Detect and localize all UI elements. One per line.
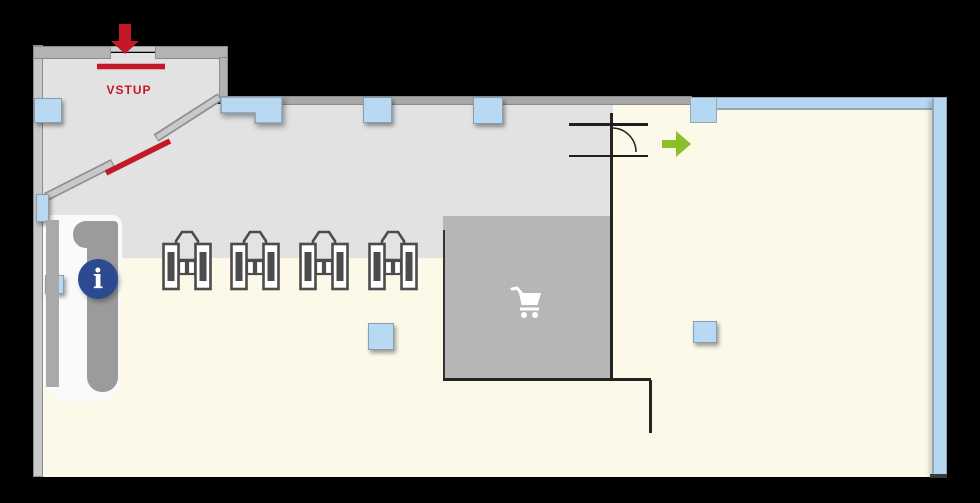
window-pillar: [34, 98, 62, 123]
shopping-cart-icon: [512, 288, 541, 318]
window-pillar-L: [221, 97, 282, 123]
entrance-gate-mark: [106, 141, 170, 173]
info-desk-counter: [87, 221, 118, 392]
window-pillar: [473, 97, 503, 124]
entrance-label: VSTUP: [100, 83, 158, 97]
red-down-arrow-icon: [111, 24, 139, 54]
floor-pillar: [368, 323, 394, 350]
info-desk-bar: [46, 220, 59, 387]
window-pillar: [363, 97, 392, 123]
turnstile-icon: [368, 229, 418, 291]
plan-overlay: [0, 0, 980, 503]
turnstile-icon: [162, 229, 212, 291]
turnstile-icon: [299, 229, 349, 291]
turnstile-icon: [230, 229, 280, 291]
green-right-arrow-icon: [662, 131, 691, 157]
info-icon: i: [78, 259, 118, 299]
floor-pillar: [693, 321, 717, 343]
floorplan-canvas: i VSTUP: [0, 0, 980, 503]
window-pillar: [36, 194, 49, 222]
door-arc-symbol: [612, 128, 636, 152]
info-glyph: i: [93, 266, 103, 293]
diagonal-wall: [46, 97, 220, 197]
